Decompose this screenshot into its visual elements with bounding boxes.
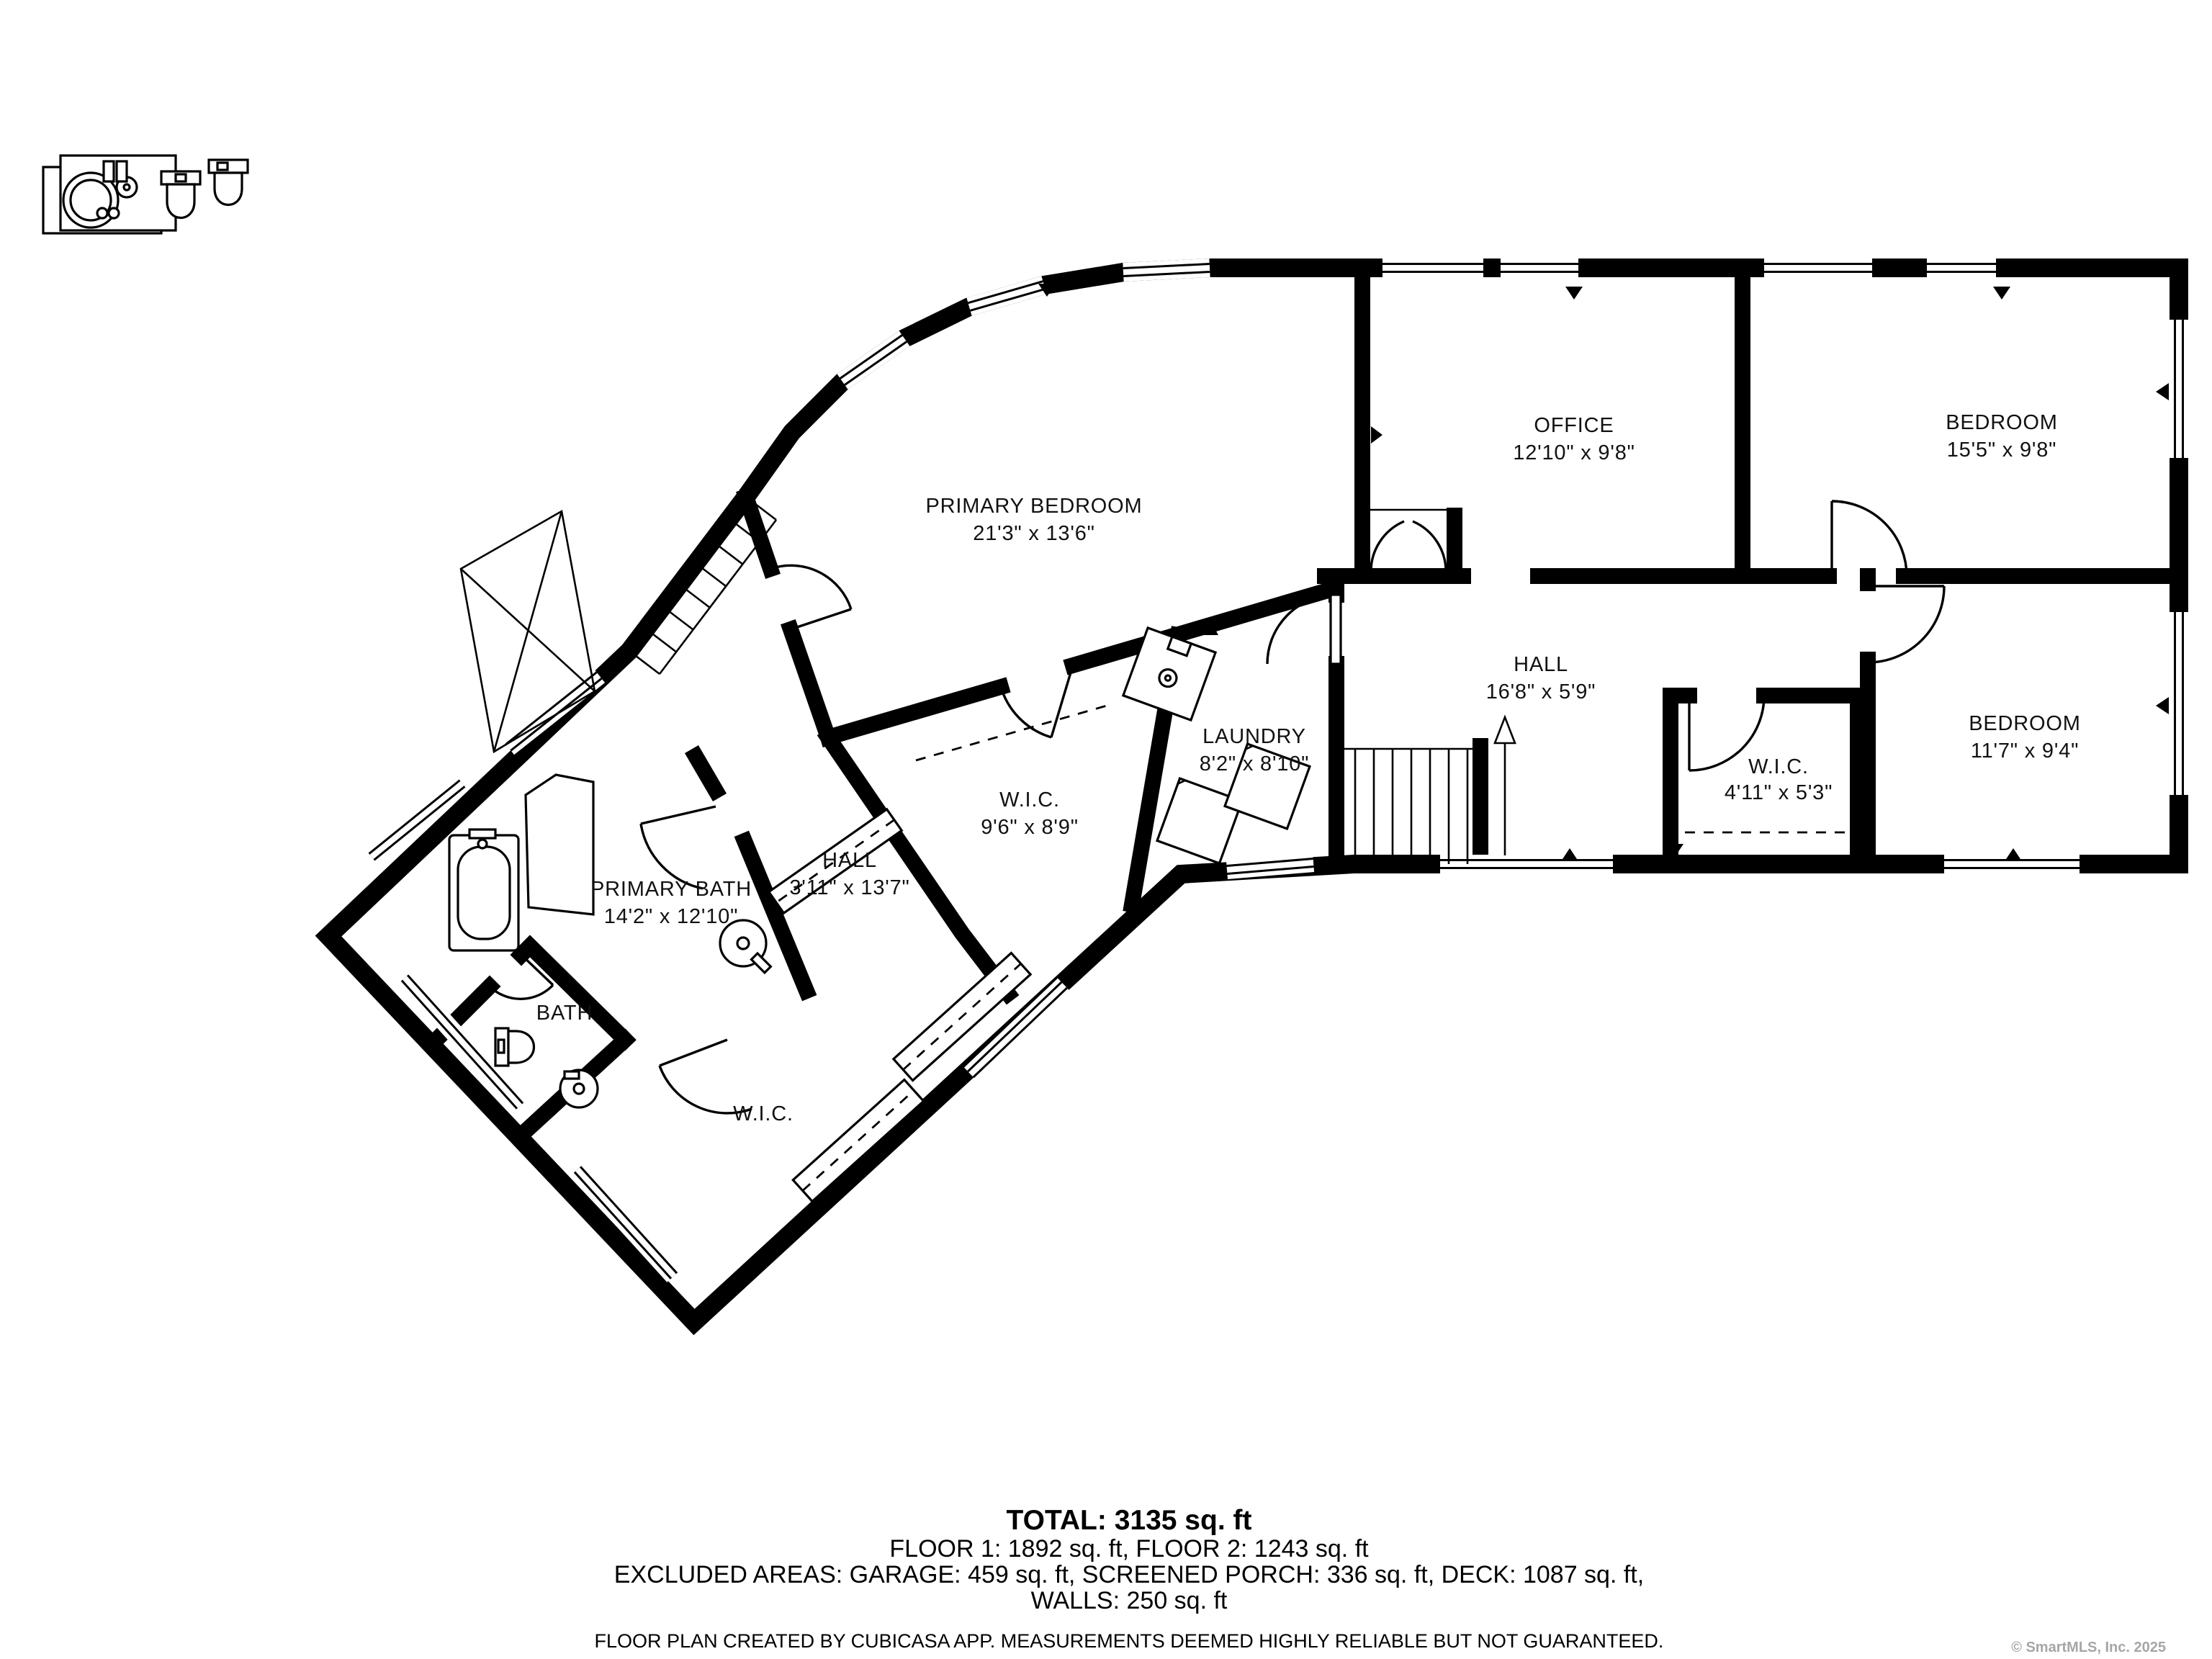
- room-label-bedroom-2: BEDROOM 11'7" x 9'4": [1969, 712, 2080, 763]
- svg-text:3'11" x 13'7": 3'11" x 13'7": [789, 876, 909, 899]
- disclaimer: FLOOR PLAN CREATED BY CUBICASA APP. MEAS…: [595, 1630, 1664, 1652]
- svg-text:14'2" x 12'10": 14'2" x 12'10": [604, 905, 738, 928]
- toilet-icon: [495, 1028, 534, 1066]
- room-labels: PRIMARY BEDROOM 21'3" x 13'6" OFFICE 12'…: [536, 411, 2081, 1125]
- total-area: TOTAL: 3135 sq. ft: [1007, 1505, 1252, 1536]
- floor-plan-drawing: PRIMARY BEDROOM 21'3" x 13'6" OFFICE 12'…: [0, 0, 2212, 1659]
- svg-text:15'5" x 9'8": 15'5" x 9'8": [1947, 439, 2057, 462]
- room-label-wic-bottom: W.I.C.: [733, 1102, 793, 1125]
- svg-text:21'3" x 13'6": 21'3" x 13'6": [973, 522, 1094, 545]
- room-label-bedroom-1: BEDROOM 15'5" x 9'8": [1946, 411, 2057, 462]
- svg-text:PRIMARY BATH: PRIMARY BATH: [590, 878, 752, 901]
- bathtub-icon: [449, 829, 518, 950]
- svg-text:BATH: BATH: [536, 1002, 593, 1025]
- svg-text:OFFICE: OFFICE: [1534, 414, 1614, 437]
- room-label-primary-bedroom: PRIMARY BEDROOM 21'3" x 13'6": [926, 495, 1143, 545]
- svg-text:W.I.C.: W.I.C.: [1748, 755, 1809, 778]
- svg-text:4'11" x 5'3": 4'11" x 5'3": [1725, 781, 1833, 804]
- room-label-wic-small: W.I.C. 4'11" x 5'3": [1725, 755, 1833, 804]
- closet-wic: [894, 953, 1030, 1081]
- svg-text:BEDROOM: BEDROOM: [1946, 411, 2057, 434]
- summary-block: TOTAL: 3135 sq. ft FLOOR 1: 1892 sq. ft,…: [595, 1505, 1664, 1652]
- toilet-icon: [209, 160, 248, 205]
- svg-text:8'2" x 8'10": 8'2" x 8'10": [1200, 752, 1310, 775]
- floor-areas: FLOOR 1: 1892 sq. ft, FLOOR 2: 1243 sq. …: [889, 1535, 1369, 1563]
- room-label-hall: HALL 16'8" x 5'9": [1486, 653, 1596, 703]
- bath-sink-icon: [560, 1070, 598, 1107]
- svg-text:11'7" x 9'4": 11'7" x 9'4": [1971, 739, 2079, 763]
- interior-walls: [432, 274, 2179, 1138]
- shower-icon: [461, 511, 595, 752]
- shower-stall-icon: [526, 775, 593, 914]
- svg-text:16'8" x 5'9": 16'8" x 5'9": [1486, 680, 1596, 703]
- stairs-arrow-head: [1495, 717, 1515, 743]
- room-label-bath: BATH: [536, 1002, 593, 1025]
- door-leaf: [1331, 595, 1341, 664]
- floor-plan-page: PRIMARY BEDROOM 21'3" x 13'6" OFFICE 12'…: [0, 0, 2212, 1659]
- svg-text:HALL: HALL: [1514, 653, 1568, 676]
- excluded-areas: EXCLUDED AREAS: GARAGE: 459 sq. ft, SCRE…: [614, 1561, 1644, 1588]
- svg-text:LAUNDRY: LAUNDRY: [1202, 725, 1306, 748]
- svg-text:BEDROOM: BEDROOM: [1969, 712, 2080, 735]
- svg-text:9'6" x 8'9": 9'6" x 8'9": [981, 816, 1079, 839]
- walls-area: WALLS: 250 sq. ft: [1031, 1587, 1228, 1614]
- svg-text:PRIMARY BEDROOM: PRIMARY BEDROOM: [926, 495, 1143, 518]
- svg-text:HALL: HALL: [822, 849, 877, 872]
- watermark: © SmartMLS, Inc. 2025: [2011, 1640, 2166, 1655]
- bifold-closet-door: [1371, 521, 1446, 573]
- room-label-office: OFFICE 12'10" x 9'8": [1513, 414, 1635, 464]
- svg-text:12'10" x 9'8": 12'10" x 9'8": [1513, 441, 1635, 464]
- svg-text:W.I.C.: W.I.C.: [999, 788, 1060, 811]
- svg-text:W.I.C.: W.I.C.: [733, 1102, 793, 1125]
- room-label-primary-bath: PRIMARY BATH 14'2" x 12'10": [590, 878, 752, 928]
- room-label-wic-9: W.I.C. 9'6" x 8'9": [981, 788, 1079, 839]
- stray-fixture-icons: [43, 156, 248, 233]
